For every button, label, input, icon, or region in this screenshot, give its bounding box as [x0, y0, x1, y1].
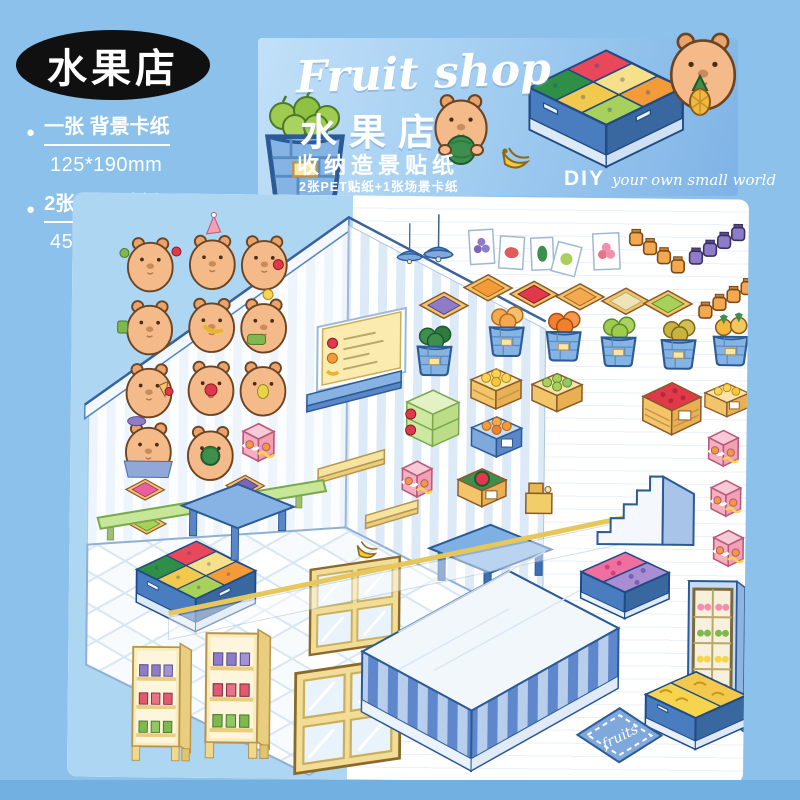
ceiling-lamp — [398, 223, 422, 264]
jam-jars-purple — [690, 224, 745, 264]
crate-lemons-2 — [705, 383, 749, 417]
jar-shelf — [132, 643, 191, 761]
bullet-icon: ● — [26, 197, 35, 223]
title-badge: 水果店 — [16, 30, 210, 100]
spec-item-1-size: 125*190mm — [50, 154, 269, 177]
bullet-icon: ● — [26, 120, 35, 146]
title-badge-label: 水果店 — [47, 36, 179, 94]
cash-register — [526, 483, 552, 513]
footer-band — [0, 780, 800, 800]
banana-bunch-icon — [503, 148, 530, 168]
diy-tagline: your own small world — [612, 171, 776, 189]
ceiling-lamp — [424, 214, 452, 262]
sticker-sheet: fruits — [67, 192, 749, 783]
fruit-posters — [468, 229, 620, 277]
crate-stack-apples — [405, 390, 459, 447]
jar-shelf — [205, 629, 270, 758]
crate-red-berries — [643, 382, 702, 435]
spec-item-1-label: 一张 背景卡纸 — [44, 110, 170, 146]
shop-scene: fruits — [67, 192, 749, 783]
jam-jars-orange-2 — [699, 278, 749, 318]
diy-label: DIY — [564, 167, 605, 191]
jam-jars-orange — [629, 229, 684, 272]
berry-freezer — [581, 552, 670, 619]
cake-box — [243, 424, 274, 462]
banner-contents-note: 2张PET贴纸+1张场景卡纸 — [299, 176, 459, 195]
fruit-display-freezer-icon — [530, 51, 683, 167]
banner-diy-line: DIY your own small world — [564, 167, 776, 191]
spec-item-1: ● 一张 背景卡纸 — [26, 110, 269, 146]
banner-title-en: Fruit shop — [295, 44, 551, 104]
stairs — [597, 476, 694, 545]
